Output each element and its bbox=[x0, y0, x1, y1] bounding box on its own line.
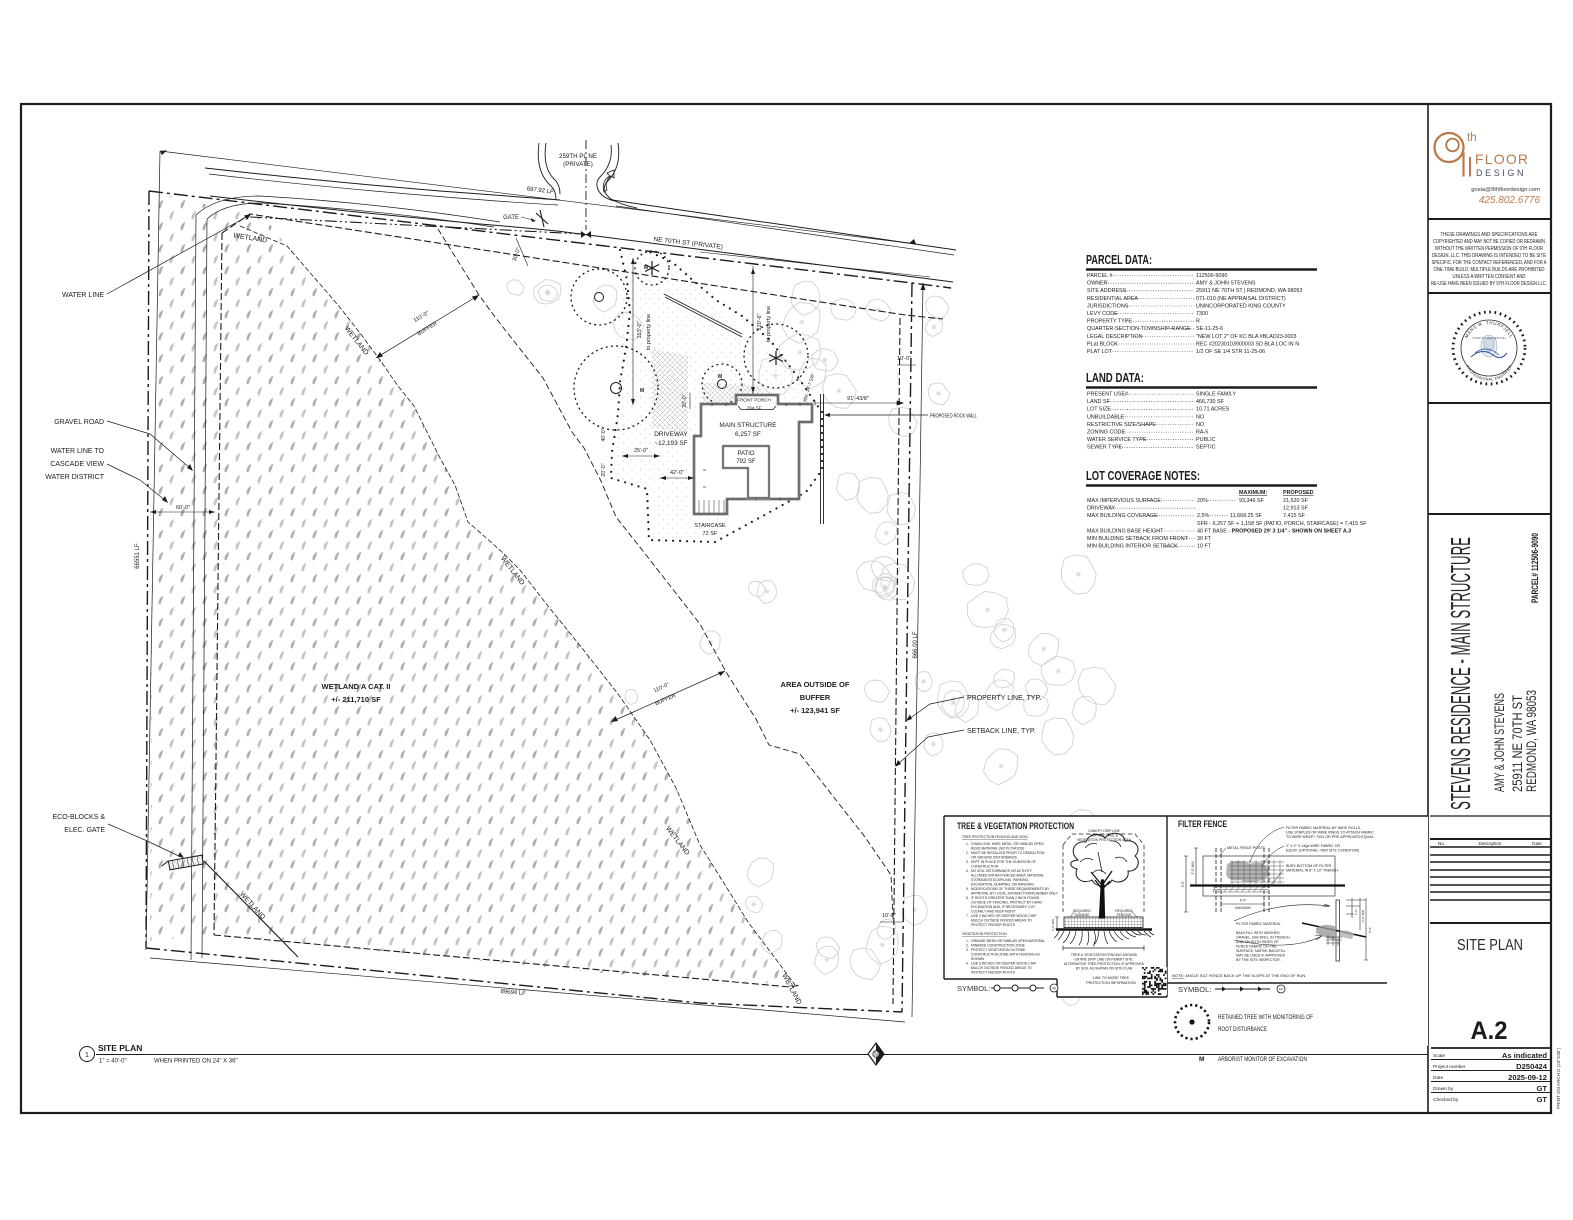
svg-text:FENCING: FENCING bbox=[1117, 913, 1132, 917]
svg-text:(PRIVATE): (PRIVATE) bbox=[563, 161, 593, 168]
svg-text:112506-9090: 112506-9090 bbox=[1196, 273, 1227, 279]
svg-text:AMY & JOHN STEVENS: AMY & JOHN STEVENS bbox=[1196, 281, 1256, 287]
svg-text:EXCAVATION AND, IF NECESSARY,: EXCAVATION AND, IF NECESSARY, CUT bbox=[971, 905, 1035, 909]
svg-text:7300: 7300 bbox=[1196, 311, 1208, 317]
svg-text:BURY BOTTOM OF FILTER: BURY BOTTOM OF FILTER bbox=[1286, 864, 1332, 868]
svg-text:72 SF: 72 SF bbox=[703, 531, 719, 537]
svg-text:STEVENS RESIDENCE - MAIN STRUC: STEVENS RESIDENCE - MAIN STRUCTURE bbox=[1445, 537, 1476, 810]
svg-text:466,730 SF: 466,730 SF bbox=[1196, 399, 1225, 405]
svg-text:SYMBOL:: SYMBOL: bbox=[1178, 985, 1211, 994]
svg-text:A.2: A.2 bbox=[1471, 1017, 1508, 1045]
svg-text:WATER LINE: WATER LINE bbox=[62, 292, 104, 299]
svg-text:1" = 40'-0": 1" = 40'-0" bbox=[99, 1059, 127, 1065]
svg-text:KEPT IN PLACE FOR THE DURATION: KEPT IN PLACE FOR THE DURATION OF bbox=[971, 860, 1036, 864]
svg-text:PARCEL #: PARCEL # bbox=[1087, 273, 1112, 279]
svg-text:BACKFILL WITH WASHED: BACKFILL WITH WASHED bbox=[1236, 931, 1280, 935]
svg-text:5.: 5. bbox=[966, 887, 969, 891]
svg-text:SPECIFIC, FOR THE CONTACT REFE: SPECIFIC, FOR THE CONTACT REFERENCED, AN… bbox=[1432, 260, 1548, 266]
svg-text:3.: 3. bbox=[966, 948, 969, 952]
svg-text:4'-0" MIN: 4'-0" MIN bbox=[1051, 919, 1055, 931]
svg-text:WETLAND A CAT. II: WETLAND A CAT. II bbox=[322, 682, 391, 691]
svg-text:6,257 SF: 6,257 SF bbox=[735, 431, 761, 438]
svg-text:AMY & JOHN STEVENS: AMY & JOHN STEVENS bbox=[1492, 693, 1507, 792]
svg-text:11,668.25 SF: 11,668.25 SF bbox=[1230, 513, 1263, 519]
svg-text:PROTECT FEEDER ROOTS: PROTECT FEEDER ROOTS bbox=[971, 971, 1016, 975]
svg-text:UNINCORPORATED KING COUNTY: UNINCORPORATED KING COUNTY bbox=[1196, 303, 1286, 309]
svg-text:MUST BE INSTALLED PRIOR TO DEM: MUST BE INSTALLED PRIOR TO DEMOLITION bbox=[971, 851, 1045, 855]
svg-text:25911 NE 70TH ST: 25911 NE 70TH ST bbox=[1510, 695, 1525, 792]
svg-text:BY SOIL AS SHOWN ON SITE PLAN: BY SOIL AS SHOWN ON SITE PLAN bbox=[1076, 967, 1133, 971]
svg-text:OWNER: OWNER bbox=[1087, 281, 1108, 287]
svg-text:MAX BUILDING BASE HEIGHT: MAX BUILDING BASE HEIGHT bbox=[1087, 528, 1164, 534]
svg-text:RESIDENTIAL AREA: RESIDENTIAL AREA bbox=[1087, 296, 1138, 302]
svg-text:Project number: Project number bbox=[1433, 1064, 1466, 1070]
svg-text:SIGNAGE: SIGNAGE bbox=[1074, 913, 1090, 917]
svg-text:MULCH OUTSIDE FENCED AREAS TO: MULCH OUTSIDE FENCED AREAS TO bbox=[971, 919, 1032, 923]
svg-text:40'-0": 40'-0" bbox=[601, 428, 607, 441]
svg-text:VEGETATION PROTECTION AREA: VEGETATION PROTECTION AREA bbox=[1077, 838, 1132, 842]
svg-text:20%: 20% bbox=[1197, 498, 1208, 504]
svg-text:IF ROOTS GREATER THAN 2 INCH F: IF ROOTS GREATER THAN 2 INCH FOUND bbox=[971, 896, 1040, 900]
svg-text:MAX IMPERVIOUS SURFACE: MAX IMPERVIOUS SURFACE bbox=[1087, 498, 1161, 504]
svg-text:66551 LF: 66551 LF bbox=[135, 543, 141, 569]
svg-text:ALLOWED WITHIN FENCED AREA: MA: ALLOWED WITHIN FENCED AREA: MATERIAL bbox=[971, 874, 1044, 878]
svg-text:259TH PL NE: 259TH PL NE bbox=[559, 153, 597, 160]
svg-text:PROPOSED ROCK WALL: PROPOSED ROCK WALL bbox=[930, 414, 977, 420]
svg-text:USE 3 INCHES OR DEEPER WOOD CH: USE 3 INCHES OR DEEPER WOOD CHIP bbox=[971, 914, 1037, 918]
svg-text:20'-0": 20'-0" bbox=[682, 394, 688, 407]
svg-text:792 SF: 792 SF bbox=[736, 459, 756, 465]
svg-text:MAXIMUM: MAXIMUM bbox=[1235, 906, 1251, 910]
svg-text:AND ON BOTH SIDES OF: AND ON BOTH SIDES OF bbox=[1236, 940, 1280, 944]
svg-text:th: th bbox=[1467, 132, 1477, 144]
svg-text:ARBORIST MONITOR OF EXCAVATION: ARBORIST MONITOR OF EXCAVATION bbox=[1218, 1056, 1307, 1063]
svg-text:RESTRICTIVE SIZE/SHAPE: RESTRICTIVE SIZE/SHAPE bbox=[1087, 422, 1156, 428]
svg-text:PROPERTY LINE, TYP.: PROPERTY LINE, TYP. bbox=[967, 695, 1041, 702]
svg-text:MAY BE USED IF APPROVED: MAY BE USED IF APPROVED bbox=[1236, 954, 1286, 958]
svg-text:SYMBOL:: SYMBOL: bbox=[957, 984, 990, 993]
svg-text:EXCAVATION, DUMPING, OR WASHIN: EXCAVATION, DUMPING, OR WASHING bbox=[971, 883, 1034, 887]
svg-text:425.802.6776: 425.802.6776 bbox=[1479, 195, 1541, 206]
svg-text:Description: Description bbox=[1479, 841, 1502, 846]
svg-text:BUFFER: BUFFER bbox=[800, 693, 831, 702]
svg-text:RIGID MATERIAL (NO PLYWOOD): RIGID MATERIAL (NO PLYWOOD) bbox=[971, 847, 1024, 851]
svg-text:REDMOND, WA 98053: REDMOND, WA 98053 bbox=[1524, 690, 1539, 792]
svg-text:CLEANLY AND KEEP MOIST: CLEANLY AND KEEP MOIST bbox=[971, 910, 1016, 914]
svg-text:As indicated: As indicated bbox=[1502, 1051, 1548, 1060]
svg-text:MINIMIZE CONSTRUCTION ZONE: MINIMIZE CONSTRUCTION ZONE bbox=[971, 944, 1026, 948]
svg-text:7.: 7. bbox=[966, 914, 969, 918]
svg-text:M: M bbox=[718, 374, 722, 380]
svg-text:+/- 211,710 SF: +/- 211,710 SF bbox=[331, 695, 381, 704]
svg-text:SURFACE. NATIVE BACKFILL: SURFACE. NATIVE BACKFILL bbox=[1236, 949, 1286, 953]
svg-text:SINGLE FAMILY: SINGLE FAMILY bbox=[1196, 392, 1236, 398]
svg-text:UNLESS A WRITTEN CONSENT AND: UNLESS A WRITTEN CONSENT AND bbox=[1453, 274, 1526, 280]
svg-text:TO WIRE WRAP? 700X OR PRE-APPR: TO WIRE WRAP? 700X OR PRE-APPROVED EQUAL bbox=[1286, 835, 1374, 839]
svg-text:MAX BUILDING COVERAGE: MAX BUILDING COVERAGE bbox=[1087, 513, 1158, 519]
svg-text:APPROVAL BY LOCAL JURISDICTION: APPROVAL BY LOCAL JURISDICTION/PLANNER O… bbox=[971, 892, 1059, 896]
svg-text:GRAVEL ROAD: GRAVEL ROAD bbox=[54, 419, 104, 426]
svg-text:4.: 4. bbox=[966, 962, 969, 966]
svg-text:PROPERTY TYPE: PROPERTY TYPE bbox=[1087, 319, 1132, 325]
svg-text:PROTECT VEGETATION OUTSIDE: PROTECT VEGETATION OUTSIDE bbox=[971, 948, 1026, 952]
svg-text:CONSTRUCTION: CONSTRUCTION bbox=[971, 865, 999, 869]
svg-text:Checked by: Checked by bbox=[1433, 1097, 1459, 1103]
svg-text:WATER LINE TO: WATER LINE TO bbox=[51, 448, 105, 455]
svg-text:MATERIAL IN 8" X 12" TRENCH: MATERIAL IN 8" X 12" TRENCH bbox=[1286, 869, 1338, 873]
svg-text:SEPTIC: SEPTIC bbox=[1196, 445, 1216, 451]
svg-text:30 FT: 30 FT bbox=[1197, 536, 1212, 542]
svg-text:DRIVEWAY: DRIVEWAY bbox=[654, 431, 688, 438]
svg-text:10'-0": 10'-0" bbox=[897, 356, 911, 362]
svg-text:GT: GT bbox=[1536, 1095, 1547, 1104]
svg-text:91'-43/8": 91'-43/8" bbox=[847, 396, 869, 402]
svg-text:FILTER FABRIC MATERIAL: FILTER FABRIC MATERIAL bbox=[1236, 922, 1281, 926]
svg-text:WHEN PRINTED ON 24" X 36": WHEN PRINTED ON 24" X 36" bbox=[154, 1059, 238, 1065]
svg-text:2.5%: 2.5% bbox=[1197, 513, 1209, 519]
svg-text:GATE: GATE bbox=[503, 215, 519, 221]
svg-text:93,346 SF: 93,346 SF bbox=[1239, 498, 1265, 504]
svg-text:gosia@9thfloordesign.com: gosia@9thfloordesign.com bbox=[1471, 187, 1540, 193]
svg-text:1/2 OF SE 1/4 STR 11-25-06: 1/2 OF SE 1/4 STR 11-25-06 bbox=[1196, 349, 1265, 355]
svg-text:THESE DRAWINGS AND SPECIFICATI: THESE DRAWINGS AND SPECIFICATIONS ARE bbox=[1441, 232, 1539, 238]
svg-text:LAND DATA:: LAND DATA: bbox=[1086, 370, 1144, 385]
svg-text:PROTECTION INFORMATION: PROTECTION INFORMATION bbox=[1086, 981, 1136, 985]
svg-text:AREA OUTSIDE OF: AREA OUTSIDE OF bbox=[781, 680, 850, 689]
svg-text:TREE & VEGETATION PROTECTION: TREE & VEGETATION PROTECTION bbox=[957, 821, 1074, 831]
svg-text:PLAT LOT: PLAT LOT bbox=[1087, 349, 1113, 355]
svg-text:FILTER FENCE: FILTER FENCE bbox=[1178, 819, 1227, 829]
svg-text:12,913 SF: 12,913 SF bbox=[1283, 506, 1309, 512]
svg-text:PUBLIC: PUBLIC bbox=[1196, 437, 1216, 443]
svg-text:SE-11-25-6: SE-11-25-6 bbox=[1196, 326, 1223, 332]
svg-text:1: 1 bbox=[85, 1052, 89, 1059]
svg-text:ZONING CODE: ZONING CODE bbox=[1087, 430, 1125, 436]
svg-text:PROPOSED: PROPOSED bbox=[1283, 490, 1314, 496]
svg-text:60'-0": 60'-0" bbox=[176, 505, 190, 511]
svg-text:CHAIN LINK, WIRE MESH, OR SIMI: CHAIN LINK, WIRE MESH, OR SIMILAR OPEN bbox=[971, 842, 1044, 846]
svg-text:1.: 1. bbox=[966, 842, 969, 846]
svg-text:40: 40 bbox=[1052, 987, 1056, 991]
svg-text:40 FT BASE - PROPOSED 29' 3 1/: 40 FT BASE - PROPOSED 29' 3 1/4" - SHOWN… bbox=[1197, 528, 1351, 534]
svg-text:ENTIRE DRIP LINE ON PERMIT SIT: ENTIRE DRIP LINE ON PERMIT SITE. bbox=[1074, 958, 1133, 962]
svg-text:CONSTRUCTION ZONE WITH FENCING: CONSTRUCTION ZONE WITH FENCING AS bbox=[971, 953, 1040, 957]
svg-text:294 SF: 294 SF bbox=[747, 406, 762, 411]
svg-text:USE 3 INCHES OR DEEPER WOOD CH: USE 3 INCHES OR DEEPER WOOD CHIP bbox=[971, 962, 1037, 966]
svg-text:10'-0": 10'-0" bbox=[882, 913, 896, 919]
svg-text:MIN BUILDING SETBACK FROM FRON: MIN BUILDING SETBACK FROM FRONT bbox=[1087, 536, 1189, 542]
svg-text:REC #20230103900003 SD BLA LOC: REC #20230103900003 SD BLA LOC IN N bbox=[1196, 341, 1299, 347]
svg-text:2025-09-12: 2025-09-12 bbox=[1508, 1073, 1547, 1082]
svg-text:7,415 SF: 7,415 SF bbox=[1283, 513, 1306, 519]
svg-text:GT: GT bbox=[1536, 1084, 1547, 1093]
svg-text:NO SOIL DISTURBANCE OR ACTIVIT: NO SOIL DISTURBANCE OR ACTIVITY bbox=[971, 869, 1033, 873]
svg-text:2" X 2" X 14ga WIRE FABRIC OR: 2" X 2" X 14ga WIRE FABRIC OR bbox=[1286, 844, 1340, 848]
svg-text:071-010 (NE APPRAISAL DISTRICT: 071-010 (NE APPRAISAL DISTRICT) bbox=[1196, 296, 1286, 302]
svg-text:LOT SIZE: LOT SIZE bbox=[1087, 407, 1111, 413]
svg-text:"NEW LOT 2" OF KC BLA #BLAD23-: "NEW LOT 2" OF KC BLA #BLAD23-0003 bbox=[1196, 334, 1297, 340]
svg-text:ORANGE MESH OR SIMILAR OPEN MA: ORANGE MESH OR SIMILAR OPEN MATERIAL bbox=[971, 939, 1045, 943]
svg-text:NO: NO bbox=[1196, 414, 1204, 420]
svg-text:N: N bbox=[874, 1052, 878, 1058]
svg-text:DESIGN, LLC. THIS DRAWING IS I: DESIGN, LLC. THIS DRAWING IS INTENDED TO… bbox=[1432, 253, 1547, 259]
svg-text:SHOWN: SHOWN bbox=[971, 957, 985, 961]
svg-text:ROOT DISTURBANCE: ROOT DISTURBANCE bbox=[1218, 1026, 1267, 1033]
svg-text:STATE OF WASHINGTON: STATE OF WASHINGTON bbox=[1472, 336, 1505, 340]
svg-text:CASCADE VIEW: CASCADE VIEW bbox=[50, 461, 104, 468]
svg-text:VEGETATION PROTECTION: VEGETATION PROTECTION bbox=[962, 932, 1007, 936]
svg-text:DESIGN: DESIGN bbox=[1476, 168, 1526, 178]
svg-text:FRONT PORCH: FRONT PORCH bbox=[737, 398, 771, 403]
svg-text:21,520 SF: 21,520 SF bbox=[1283, 498, 1309, 504]
svg-text:1'-0": 1'-0" bbox=[1354, 909, 1358, 915]
svg-text:5'-0": 5'-0" bbox=[1181, 881, 1185, 887]
svg-text:LEGAL DESCRIPTION: LEGAL DESCRIPTION bbox=[1087, 334, 1143, 340]
svg-text:RETAINED TREE WITH MONITORING: RETAINED TREE WITH MONITORING OF bbox=[1218, 1014, 1313, 1021]
svg-text:6.: 6. bbox=[966, 896, 969, 900]
svg-text:to property line: to property line bbox=[646, 314, 652, 350]
svg-text:6'-0": 6'-0" bbox=[1240, 899, 1246, 903]
svg-text:M: M bbox=[1199, 1056, 1205, 1063]
svg-text:PRESENT USE#: PRESENT USE# bbox=[1087, 392, 1128, 398]
svg-text:M: M bbox=[644, 265, 648, 271]
svg-text:ALTERNATIVE TREE PROTECTION, I: ALTERNATIVE TREE PROTECTION, IF APPROVED bbox=[1064, 962, 1145, 966]
svg-text:RA-5: RA-5 bbox=[1196, 430, 1208, 436]
svg-text:SITE PLAN: SITE PLAN bbox=[1457, 937, 1523, 954]
svg-text:to property line: to property line bbox=[766, 306, 772, 342]
svg-text:1.: 1. bbox=[966, 939, 969, 943]
svg-text:WATER SERVICE TYPE: WATER SERVICE TYPE bbox=[1087, 437, 1147, 443]
svg-text:USE STAPLES OR WIRE RINGS TO A: USE STAPLES OR WIRE RINGS TO ATTACH FABR… bbox=[1286, 831, 1374, 835]
svg-text:RE-USE HAVE BEEN ISSUED BY 9TH: RE-USE HAVE BEEN ISSUED BY 9TH FLOOR DES… bbox=[1431, 281, 1547, 287]
svg-text:STORAGE/STOCKPILING, PARKING,: STORAGE/STOCKPILING, PARKING, bbox=[971, 878, 1029, 882]
svg-text:+/- 123,941 SF: +/- 123,941 SF bbox=[790, 706, 840, 715]
svg-text:MAIN STRUCTURE: MAIN STRUCTURE bbox=[719, 422, 776, 429]
svg-text:SEWER TYPE: SEWER TYPE bbox=[1087, 445, 1123, 451]
svg-text:Date: Date bbox=[1433, 1075, 1443, 1081]
svg-text:ELEC. GATE: ELEC. GATE bbox=[64, 827, 105, 834]
svg-text:D250424: D250424 bbox=[1516, 1062, 1548, 1071]
svg-text:Scale: Scale bbox=[1433, 1053, 1445, 1059]
svg-text:LEVY CODE: LEVY CODE bbox=[1087, 311, 1118, 317]
svg-text:NOTE: ANGLE SILT FENCE BACK UP: NOTE: ANGLE SILT FENCE BACK UP THE SLOPE… bbox=[1172, 973, 1306, 978]
svg-text:3.: 3. bbox=[966, 860, 969, 864]
svg-text:SITE PLAN: SITE PLAN bbox=[98, 1043, 142, 1053]
svg-text:BY THE SITE INSPECTOR.: BY THE SITE INSPECTOR. bbox=[1236, 958, 1281, 962]
svg-text:5'-0": 5'-0" bbox=[1368, 927, 1372, 933]
svg-text:FLOOR: FLOOR bbox=[1475, 151, 1529, 167]
svg-text:NO: NO bbox=[1196, 422, 1204, 428]
svg-text:PATIO: PATIO bbox=[737, 451, 754, 457]
svg-text:10.71 ACRES: 10.71 ACRES bbox=[1196, 407, 1230, 413]
svg-text:LAND SF: LAND SF bbox=[1087, 399, 1110, 405]
svg-text:SETBACK LINE, TYP.: SETBACK LINE, TYP. bbox=[967, 728, 1036, 735]
svg-text:SFR - 6,257 SF + 1,158 SF (PAT: SFR - 6,257 SF + 1,158 SF (PATIO, PORCH,… bbox=[1197, 521, 1367, 527]
svg-text:2.: 2. bbox=[966, 851, 969, 855]
svg-text:OR GROUND DISTURBANCE: OR GROUND DISTURBANCE bbox=[971, 856, 1018, 860]
svg-text:PARCEL# 112506-9090: PARCEL# 112506-9090 bbox=[1530, 533, 1540, 603]
svg-text:PRINT ON ARCH D (24"X36"): PRINT ON ARCH D (24"X36") bbox=[1556, 1047, 1561, 1109]
svg-text:No.: No. bbox=[1438, 841, 1445, 846]
svg-text:42'-0": 42'-0" bbox=[670, 470, 684, 476]
svg-text:10 FT: 10 FT bbox=[1197, 544, 1212, 550]
svg-text:2'-0" MIN: 2'-0" MIN bbox=[1361, 910, 1365, 922]
svg-text:4.: 4. bbox=[966, 869, 969, 873]
svg-text:WITHOUT THE WRITTEN PERMISSION: WITHOUT THE WRITTEN PERMISSION OF 9TH FL… bbox=[1435, 246, 1543, 252]
svg-text:CANOPY DRIP LINE: CANOPY DRIP LINE bbox=[1088, 829, 1120, 833]
svg-text:DEFINES TREE &: DEFINES TREE & bbox=[1090, 834, 1119, 838]
svg-text:FENCE FABRIC ON THE: FENCE FABRIC ON THE bbox=[1236, 945, 1277, 949]
svg-text:20'-0": 20'-0" bbox=[601, 463, 607, 476]
svg-text:SITE ADDRESS: SITE ADDRESS bbox=[1087, 288, 1127, 294]
svg-text:ECO-BLOCKS &: ECO-BLOCKS & bbox=[52, 814, 105, 821]
svg-text:153'-0": 153'-0" bbox=[637, 321, 643, 338]
svg-text:COPYRIGHTED AND MAY NOT BE COP: COPYRIGHTED AND MAY NOT BE COPIED OR RED… bbox=[1433, 239, 1545, 245]
svg-text:PROTECT FEEDER ROOTS: PROTECT FEEDER ROOTS bbox=[971, 923, 1016, 927]
svg-text:GRAVEL. BACKFILL IN TRENCH: GRAVEL. BACKFILL IN TRENCH bbox=[1236, 936, 1290, 940]
svg-text:JURISDICTIONS: JURISDICTIONS bbox=[1087, 303, 1129, 309]
svg-text:PLat BLOCK: PLat BLOCK bbox=[1087, 341, 1118, 347]
svg-text:Drawn by: Drawn by bbox=[1433, 1086, 1454, 1092]
svg-text:~12,193 SF: ~12,193 SF bbox=[654, 440, 687, 447]
svg-text:QUARTER-SECTION-TOWNSHIP-RANGE: QUARTER-SECTION-TOWNSHIP-RANGE bbox=[1087, 326, 1191, 332]
svg-text:2'-0" MIN: 2'-0" MIN bbox=[1191, 861, 1195, 875]
svg-text:FILTER FABRIC MATERIAL 60" WID: FILTER FABRIC MATERIAL 60" WIDE ROLLS. bbox=[1286, 826, 1361, 830]
svg-text:Date: Date bbox=[1532, 841, 1542, 846]
svg-text:2.: 2. bbox=[966, 944, 969, 948]
svg-text:LOT COVERAGE NOTES:: LOT COVERAGE NOTES: bbox=[1086, 468, 1200, 483]
svg-text:666.00 LF: 666.00 LF bbox=[913, 631, 919, 658]
svg-text:MIN BUILDING INTERIOR SETBACK: MIN BUILDING INTERIOR SETBACK bbox=[1087, 544, 1178, 550]
svg-text:MODIFICATIONS OF THESE REQUIRE: MODIFICATIONS OF THESE REQUIREMENTS BY bbox=[971, 887, 1050, 891]
svg-text:MULCH OUTSIDE FENCED AREAS TO: MULCH OUTSIDE FENCED AREAS TO bbox=[971, 966, 1032, 970]
svg-text:MAXIMUM:: MAXIMUM: bbox=[1239, 490, 1267, 496]
svg-text:R: R bbox=[1196, 319, 1200, 325]
svg-text:METAL FENCE POSTS: METAL FENCE POSTS bbox=[1227, 846, 1266, 850]
svg-text:M: M bbox=[640, 388, 644, 394]
svg-text:LINK TO MORE TREE: LINK TO MORE TREE bbox=[1093, 976, 1130, 980]
svg-text:OUTSIDE OF FENCING, PROTECT BY: OUTSIDE OF FENCING, PROTECT BY HAND bbox=[971, 901, 1042, 905]
svg-text:ONE-TIME BUILD. MULTIPLE BUILD: ONE-TIME BUILD. MULTIPLE BUILDS ARE PROH… bbox=[1434, 267, 1545, 273]
svg-text:WATER DISTRICT: WATER DISTRICT bbox=[45, 474, 104, 481]
svg-text:120'-6": 120'-6" bbox=[757, 313, 763, 330]
svg-text:PARCEL DATA:: PARCEL DATA: bbox=[1086, 252, 1152, 267]
svg-text:FF: FF bbox=[1279, 988, 1283, 992]
svg-text:25'-0": 25'-0" bbox=[634, 448, 648, 454]
svg-text:DRIVEWAY: DRIVEWAY bbox=[1087, 506, 1116, 512]
svg-text:EQUIV. (OPTIONAL--PER SITE CON: EQUIV. (OPTIONAL--PER SITE CONDITION) bbox=[1286, 849, 1359, 853]
svg-text:TREE & VEGETATION FENCING AROU: TREE & VEGETATION FENCING AROUND bbox=[1071, 953, 1138, 957]
svg-text:TREE PROTECTION FENCING AND SI: TREE PROTECTION FENCING AND SIGN bbox=[962, 835, 1028, 839]
svg-text:25911 NE 70TH ST | REDMOND,: 25911 NE 70TH ST | REDMOND, WA 98053 bbox=[1196, 288, 1302, 294]
svg-text:UNBUILDABLE: UNBUILDABLE bbox=[1087, 414, 1125, 420]
svg-text:STAIRCASE: STAIRCASE bbox=[694, 523, 726, 529]
